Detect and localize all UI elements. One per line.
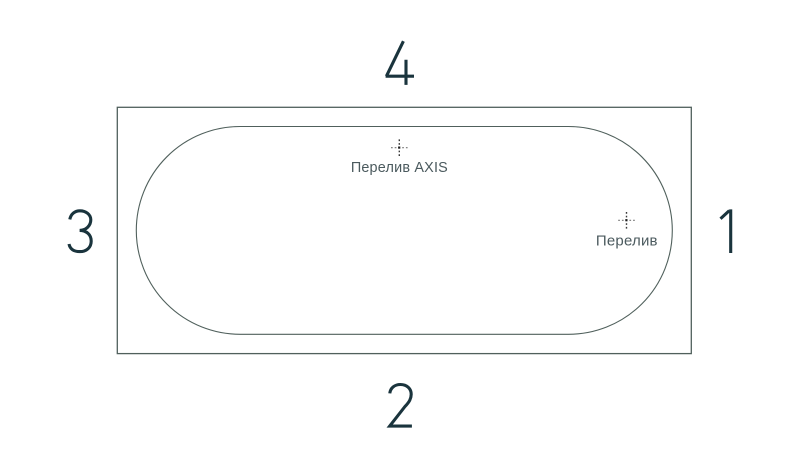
svg-text:Перелив: Перелив [596,233,658,250]
svg-text:Перелив AXIS: Перелив AXIS [351,160,448,176]
